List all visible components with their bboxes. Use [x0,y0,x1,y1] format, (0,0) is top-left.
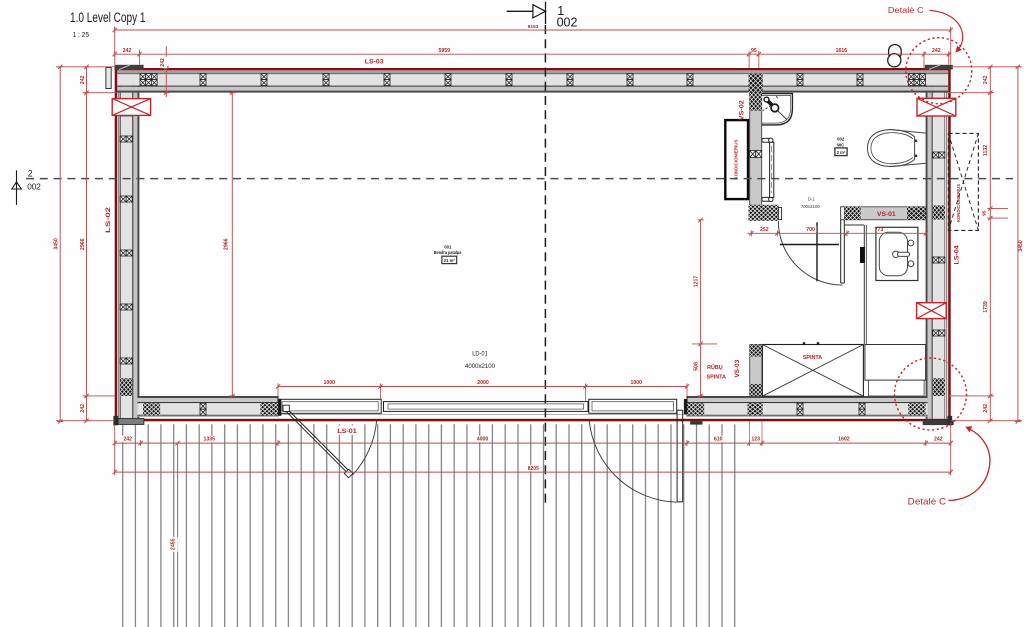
svg-text:242: 242 [160,58,166,67]
svg-text:700: 700 [806,227,815,233]
svg-text:1 : 25: 1 : 25 [73,32,90,39]
svg-text:001: 001 [444,244,452,249]
svg-text:4000x2100: 4000x2100 [465,363,495,370]
svg-text:RŪBŲ: RŪBŲ [707,364,723,371]
svg-text:1335: 1335 [204,437,216,443]
svg-text:1217: 1217 [693,276,699,288]
svg-text:KONDICIONIERIUS: KONDICIONIERIUS [733,139,738,179]
svg-text:4000: 4000 [477,437,489,443]
svg-text:1132: 1132 [983,145,989,156]
svg-text:Bendra patalpa: Bendra patalpa [434,250,462,255]
svg-text:1616: 1616 [836,48,848,54]
svg-text:95: 95 [982,210,988,216]
svg-text:3450: 3450 [1018,240,1024,252]
svg-text:D-1: D-1 [808,196,815,201]
svg-text:242: 242 [123,48,132,54]
svg-text:SPINTA: SPINTA [707,374,726,380]
svg-text:242: 242 [123,437,132,443]
svg-text:LD-01: LD-01 [472,350,488,357]
svg-text:8205: 8205 [528,466,539,472]
svg-text:242: 242 [932,48,941,54]
svg-text:95: 95 [751,48,757,54]
svg-text:LS-01: LS-01 [337,428,357,435]
svg-text:1.0 Level Copy 1: 1.0 Level Copy 1 [70,10,146,25]
svg-text:1000: 1000 [631,380,643,386]
svg-text:1739: 1739 [983,301,989,313]
svg-text:1602: 1602 [838,437,850,443]
svg-text:2000: 2000 [477,380,489,386]
svg-text:2 m²: 2 m² [837,150,846,155]
svg-text:LS-04: LS-04 [954,245,961,264]
svg-text:KONDICIONIERIUS: KONDICIONIERIUS [956,184,961,222]
svg-text:VS-02: VS-02 [738,100,745,120]
svg-text:242: 242 [80,75,86,84]
svg-text:123: 123 [751,437,760,443]
svg-text:VS-03: VS-03 [734,359,741,377]
svg-text:508: 508 [693,362,699,371]
svg-text:Detalė C: Detalė C [908,497,947,508]
svg-text:2455: 2455 [170,538,176,550]
svg-text:242: 242 [983,404,989,413]
svg-text:21 m²: 21 m² [444,258,456,263]
svg-text:2966: 2966 [80,238,86,250]
svg-text:242: 242 [983,75,989,84]
svg-text:LS-02: LS-02 [105,207,112,233]
svg-text:3450: 3450 [54,238,60,250]
svg-text:242: 242 [80,404,86,413]
svg-text:8153: 8153 [528,24,539,30]
svg-text:252: 252 [760,227,769,233]
svg-text:SPINTA: SPINTA [803,355,822,361]
svg-text:WC: WC [837,142,844,147]
svg-text:700x2100: 700x2100 [801,204,821,209]
svg-text:002: 002 [27,183,41,192]
svg-text:773: 773 [875,227,884,233]
svg-text:610: 610 [714,437,723,443]
svg-text:LS-03: LS-03 [365,59,384,66]
svg-text:2: 2 [28,169,33,179]
svg-text:242: 242 [934,437,943,443]
svg-text:5959: 5959 [439,48,451,54]
svg-text:2966: 2966 [224,238,230,250]
svg-text:VS-01: VS-01 [877,211,896,218]
svg-text:1000: 1000 [324,380,336,386]
svg-text:Detalė C: Detalė C [888,5,924,15]
svg-text:002: 002 [837,137,845,142]
svg-text:002: 002 [557,16,578,30]
